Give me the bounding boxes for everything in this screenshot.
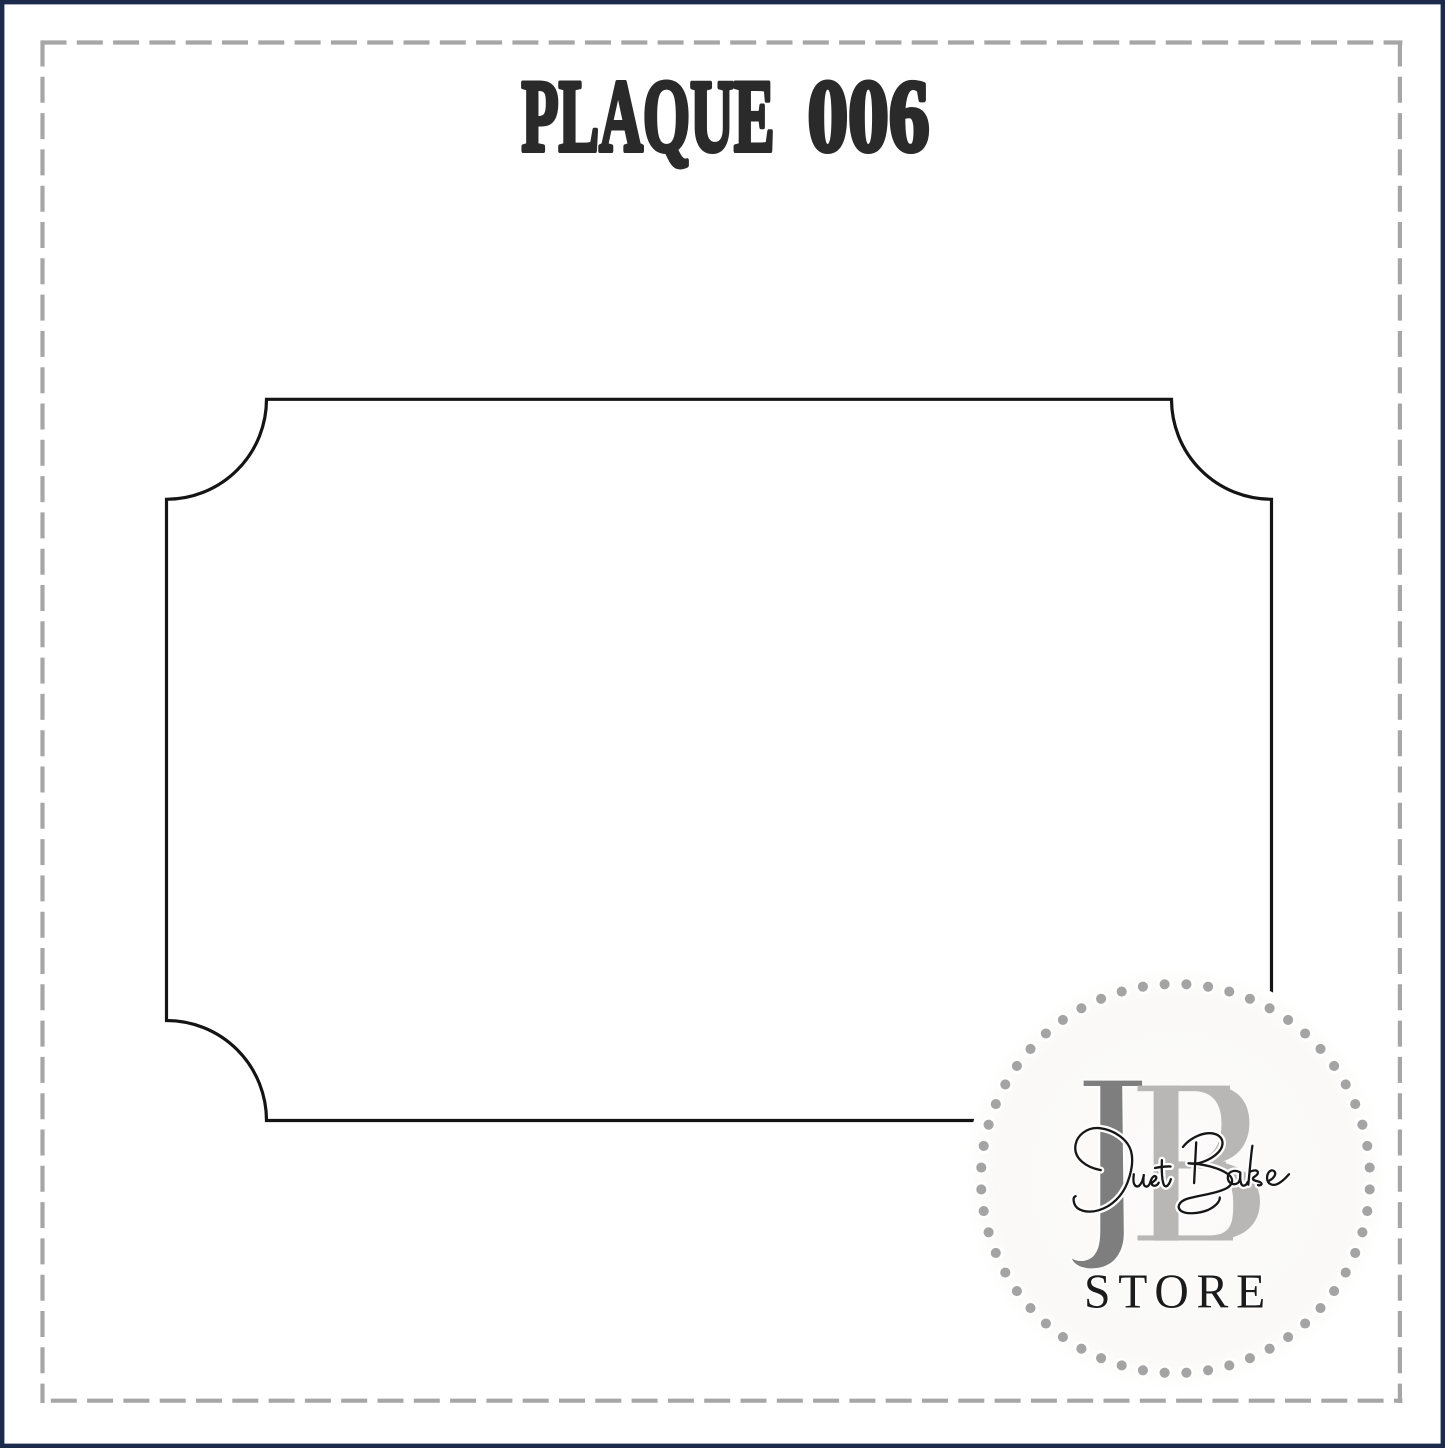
svg-text:006: 006 [808, 60, 930, 174]
svg-text:STORE: STORE [1084, 1264, 1273, 1319]
svg-text:PLAQUE: PLAQUE [522, 60, 775, 174]
